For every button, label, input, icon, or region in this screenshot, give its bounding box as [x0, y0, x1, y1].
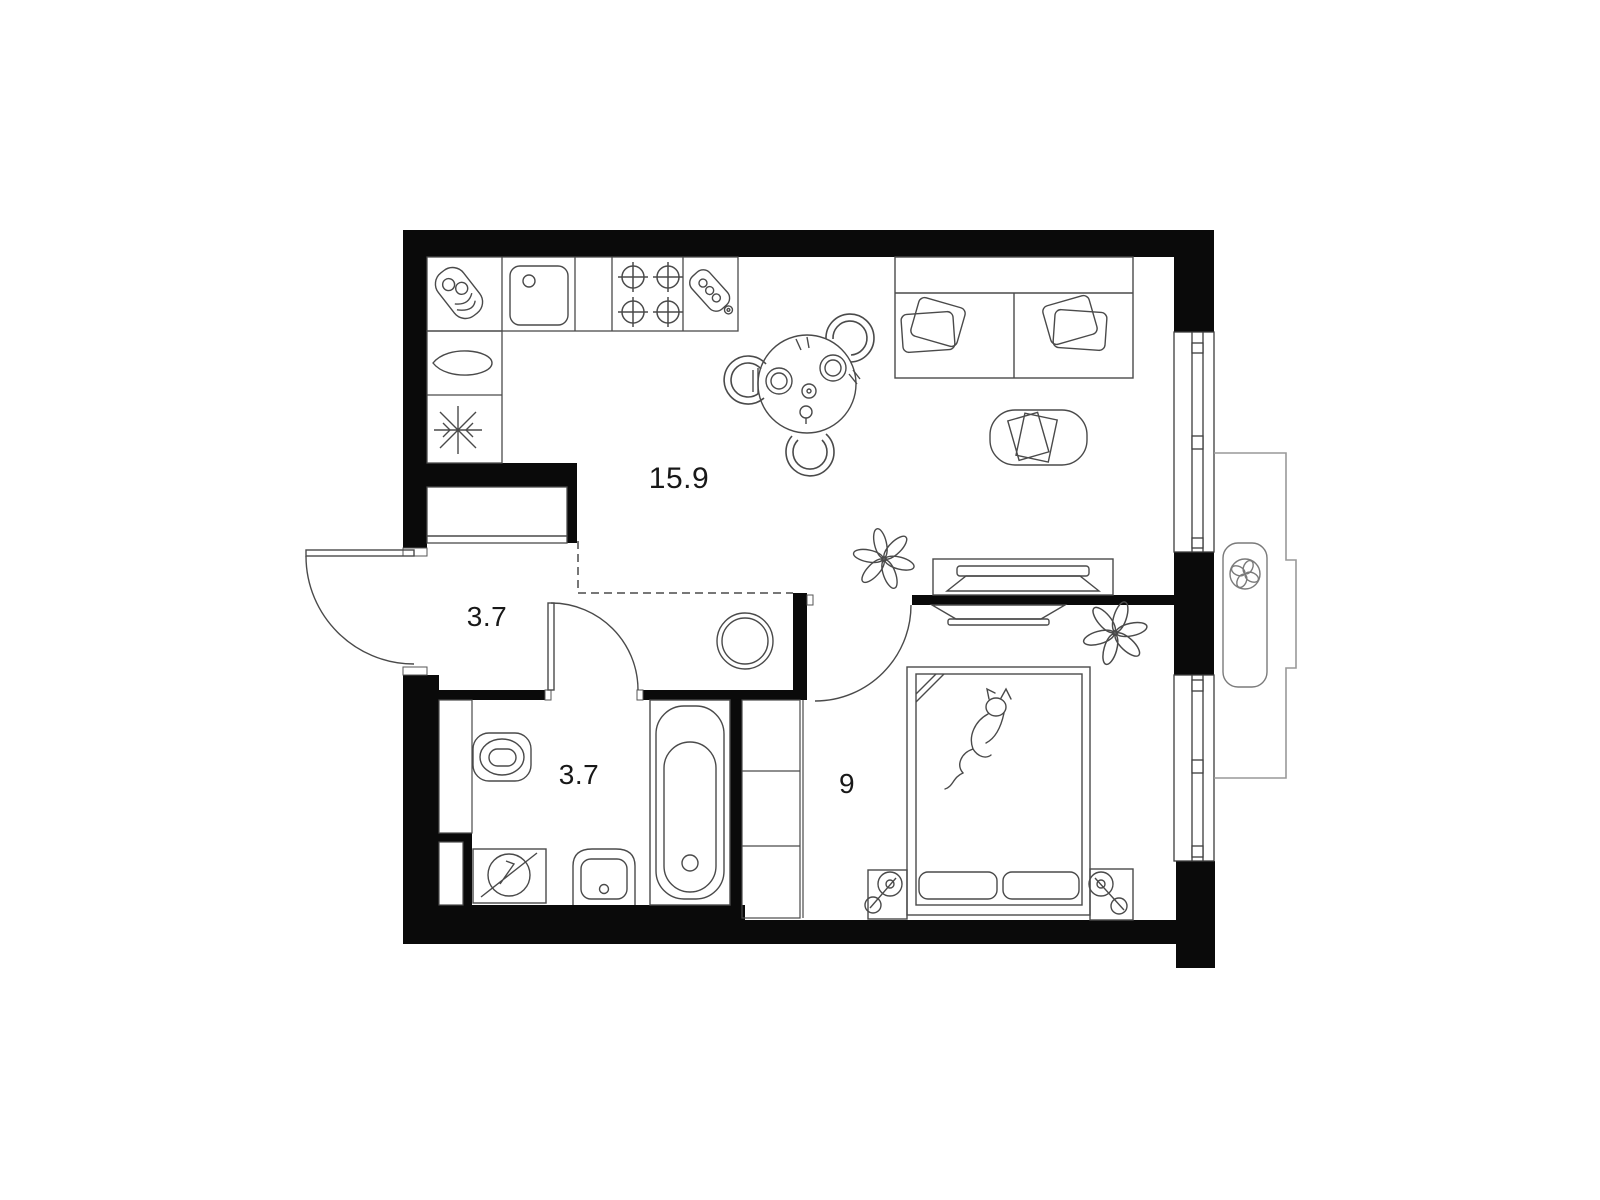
entrance-door-arc — [306, 556, 414, 664]
tv-console-icon — [933, 559, 1113, 595]
bathroom-door-leaf — [548, 603, 554, 690]
ac-fan-icon — [1230, 559, 1260, 589]
cat-icon — [945, 689, 1011, 789]
bathroom-door-arc — [551, 603, 638, 690]
pillow-icon — [1041, 294, 1107, 351]
hallway-area-label: 3.7 — [467, 601, 507, 633]
bathtub-icon — [650, 700, 730, 905]
water-heater-icon — [717, 613, 773, 669]
pillow-icon — [919, 872, 997, 899]
magazines-icon — [1008, 412, 1057, 462]
ac-unit — [1223, 543, 1267, 687]
toilet-icon — [473, 733, 531, 781]
closet-shelves-icon — [742, 700, 803, 918]
washing-machine-icon — [473, 849, 546, 903]
entrance-door-leaf — [306, 550, 414, 556]
bedroom-window — [1174, 675, 1214, 861]
plant-icon — [1076, 595, 1153, 671]
tv-icon — [957, 566, 1089, 576]
floor-plan-svg — [0, 0, 1600, 1200]
pillow-icon — [1003, 872, 1079, 899]
bedroom-door-arc — [815, 605, 911, 701]
chair-icon — [786, 434, 834, 476]
entrance-door — [306, 550, 414, 664]
cutting-board-icon — [686, 266, 739, 321]
sofa-icon — [895, 257, 1133, 378]
nightstand-lamp-icon — [865, 870, 907, 919]
coffee-table-icon — [990, 410, 1087, 465]
bedroom-tv-icon — [932, 605, 1065, 625]
wardrobe-icon — [427, 487, 567, 543]
bedroom-area-label: 9 — [839, 768, 855, 800]
dish-rack-icon — [430, 262, 488, 324]
fridge-snowflake-icon — [434, 406, 482, 454]
kitchen-living-room-area-label: 15.9 — [649, 462, 709, 496]
bed-icon — [907, 667, 1090, 915]
kitchen-sink-icon — [510, 266, 568, 325]
plant-icon — [846, 522, 922, 596]
bathroom-area-label: 3.7 — [559, 759, 599, 791]
bathroom-door — [548, 603, 638, 690]
stove-burners-icon — [618, 262, 683, 327]
balcony-outline — [1214, 453, 1296, 778]
nightstand-lamp-icon — [1089, 869, 1133, 920]
bath-sink-icon — [573, 849, 635, 905]
dining-table-icon — [753, 335, 860, 433]
floor-plan-canvas: 15.9 3.7 3.7 9 — [0, 0, 1600, 1200]
chair-icons — [724, 314, 874, 476]
living-room-window — [1174, 332, 1214, 552]
pillow-icon — [901, 296, 967, 353]
kettle-icon — [433, 351, 492, 375]
zone-divider-dashed-line — [578, 541, 793, 593]
